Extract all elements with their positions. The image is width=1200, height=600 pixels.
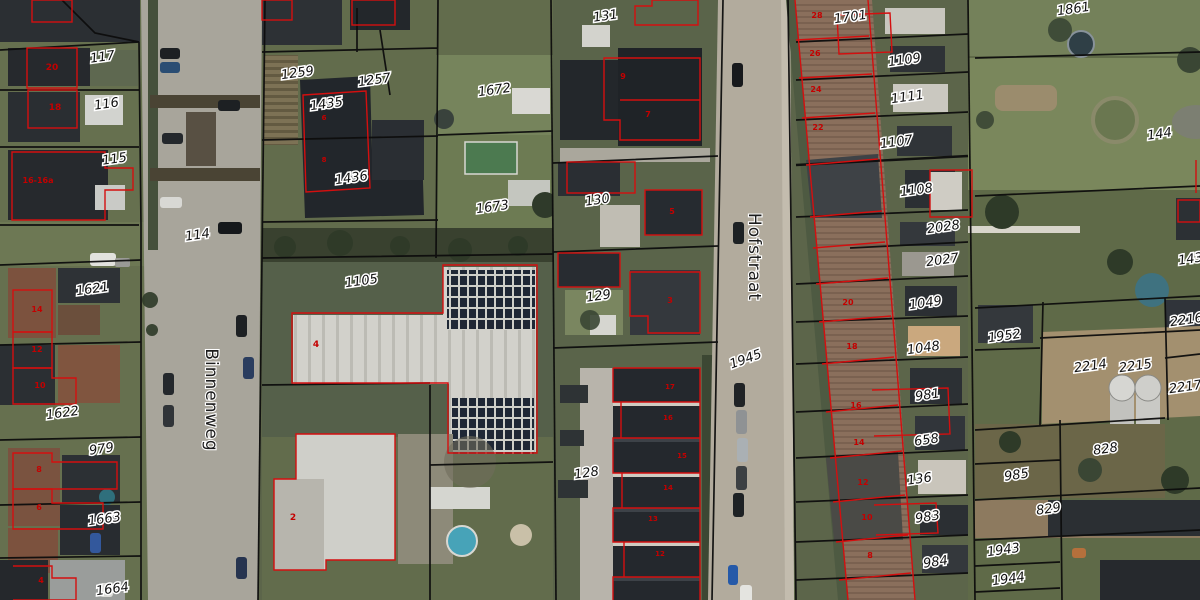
house-number-label: 4: [38, 576, 44, 585]
house-number-label: 26: [809, 49, 821, 58]
house-number-label: 16: [663, 414, 673, 422]
house-number-label: 16-16a: [23, 176, 54, 185]
house-number-label: 20: [46, 63, 59, 73]
house-number-label: 10: [34, 381, 46, 390]
house-number-label: 24: [810, 85, 822, 94]
house-number-label: 2: [290, 513, 296, 523]
house-number-label: 22: [812, 123, 823, 132]
map-canvas[interactable]: BinnenwegHofstraat 117116115114162116229…: [0, 0, 1200, 600]
house-number-label: 9: [620, 72, 626, 81]
house-number-label: 12: [655, 550, 665, 558]
house-number-label: 5: [669, 207, 675, 216]
house-number-label: 6: [36, 503, 42, 512]
house-number-label: 28: [811, 11, 823, 20]
parcel-number-label: 143: [1177, 250, 1200, 268]
aerial-map-viewport[interactable]: BinnenwegHofstraat 117116115114162116229…: [0, 0, 1200, 600]
street-name-label: Binnenweg: [201, 348, 221, 451]
house-number-label: 7: [645, 110, 651, 119]
house-number-label: 8: [867, 551, 873, 560]
house-number-label: 12: [31, 345, 42, 354]
house-number-label: 18: [49, 103, 62, 113]
house-number-label: 14: [663, 484, 673, 492]
house-number-label: 18: [846, 342, 858, 351]
house-roof-129: [630, 270, 700, 335]
house-number-label: 6: [322, 114, 327, 122]
trampoline: [1068, 31, 1094, 57]
garden-144: [968, 58, 1200, 190]
house-number-label: 13: [648, 515, 658, 523]
binnenweg-road: [141, 0, 262, 600]
house-number-label: 17: [665, 383, 675, 391]
street-name-label: Hofstraat: [744, 213, 764, 301]
house-number-label: 14: [853, 438, 865, 447]
solar-array-north: [447, 270, 535, 330]
house-number-label: 8: [36, 465, 42, 474]
house-number-label: 4: [313, 340, 319, 350]
house-number-label: 8: [322, 156, 327, 164]
house-number-label: 12: [857, 478, 868, 487]
house-number-label: 20: [842, 298, 854, 307]
house-number-label: 15: [677, 452, 687, 460]
round-pool: [447, 526, 477, 556]
house-number-label: 14: [31, 305, 43, 314]
house-number-label: 3: [667, 296, 673, 305]
house-number-label: 16: [850, 401, 862, 410]
house-number-label: 10: [861, 513, 873, 522]
